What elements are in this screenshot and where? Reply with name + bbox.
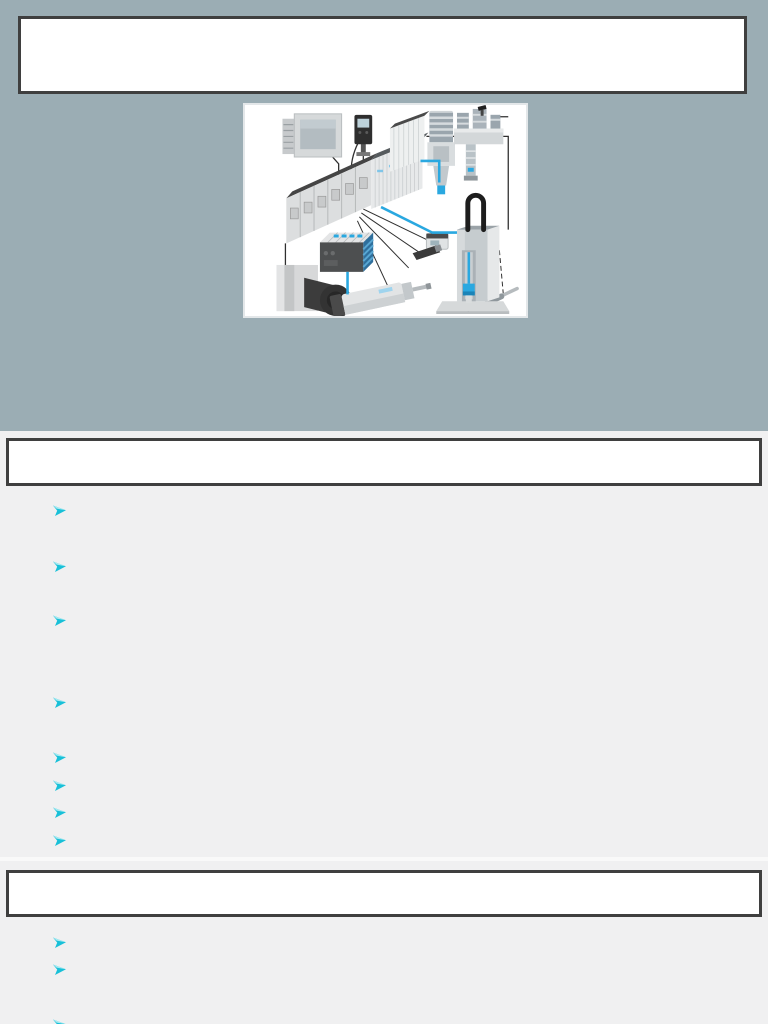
arrow-bullet-icon — [52, 504, 67, 517]
list-item — [52, 806, 752, 820]
section-2-header-box — [6, 870, 762, 917]
arrow-bullet-icon — [52, 834, 67, 847]
hmi-panel — [282, 114, 341, 157]
electric-cylinder — [329, 275, 434, 316]
list-item — [52, 751, 752, 765]
section-2-header-text — [9, 873, 759, 885]
section-1-header-text — [9, 441, 759, 453]
content-panel — [0, 431, 768, 1024]
list-item — [52, 936, 752, 950]
list-item — [52, 963, 752, 977]
energy-chain-cable — [468, 195, 484, 229]
arrow-bullet-icon — [52, 696, 67, 709]
list-item — [52, 504, 752, 518]
arrow-bullet-icon — [52, 751, 67, 764]
valve-terminal-extension — [390, 111, 429, 172]
arrow-bullet-icon — [52, 806, 67, 819]
page-seam — [0, 857, 768, 861]
arrow-bullet-icon — [52, 779, 67, 792]
hero-image — [243, 103, 528, 318]
list-item — [52, 834, 752, 848]
arrow-bullet-icon — [52, 1018, 67, 1024]
automation-system-illustration — [245, 105, 526, 316]
document-page — [0, 0, 768, 1024]
list-item — [52, 614, 752, 628]
title-box — [18, 16, 747, 94]
arrow-bullet-icon — [52, 614, 67, 627]
list-item — [52, 1018, 752, 1024]
list-item — [52, 779, 752, 793]
arrow-bullet-icon — [52, 936, 67, 949]
display-sensor — [354, 115, 372, 156]
arrow-bullet-icon — [52, 560, 67, 573]
section-1-header-box — [6, 438, 762, 486]
title-text — [21, 19, 744, 35]
list-item — [52, 696, 752, 710]
arrow-bullet-icon — [52, 963, 67, 976]
top-panel — [0, 0, 768, 433]
valve-manifold — [320, 233, 373, 272]
list-item — [52, 560, 752, 574]
